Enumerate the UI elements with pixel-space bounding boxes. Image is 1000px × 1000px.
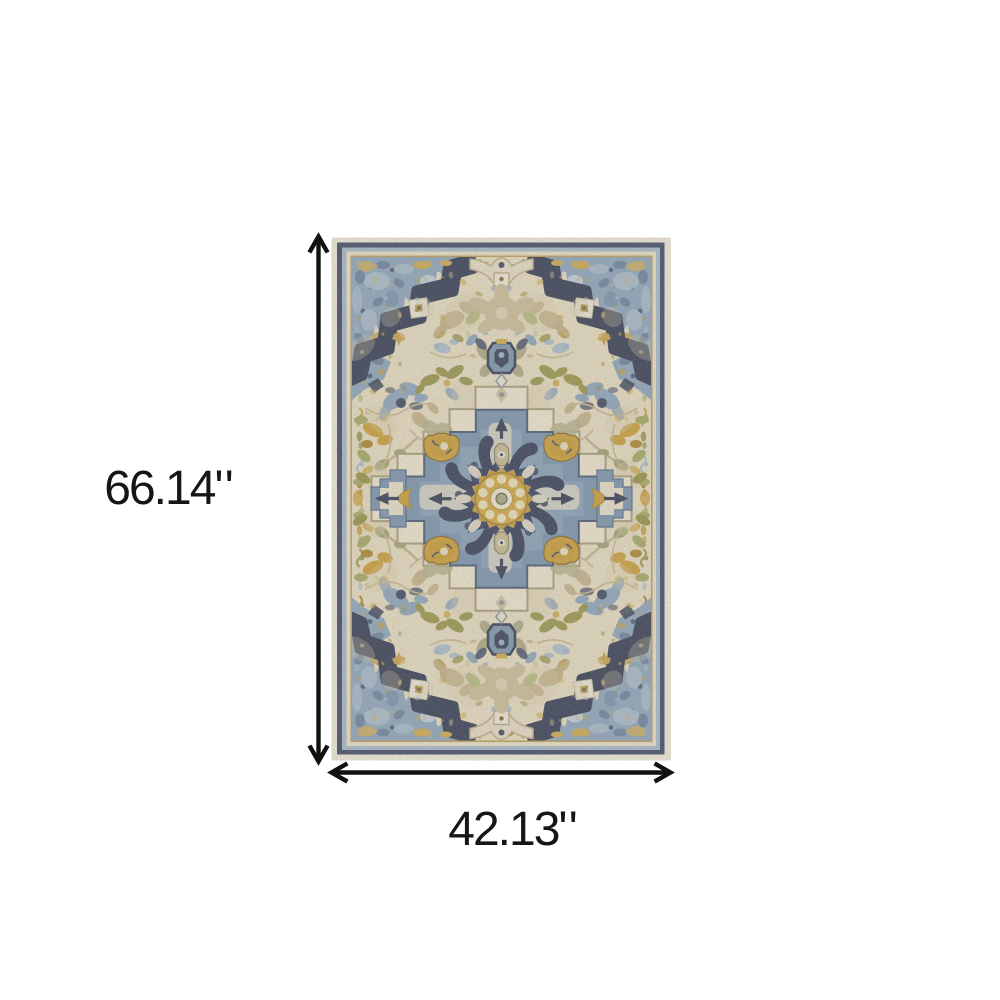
svg-text:42.13'': 42.13'': [448, 803, 577, 856]
svg-text:66.14'': 66.14'': [104, 462, 233, 515]
